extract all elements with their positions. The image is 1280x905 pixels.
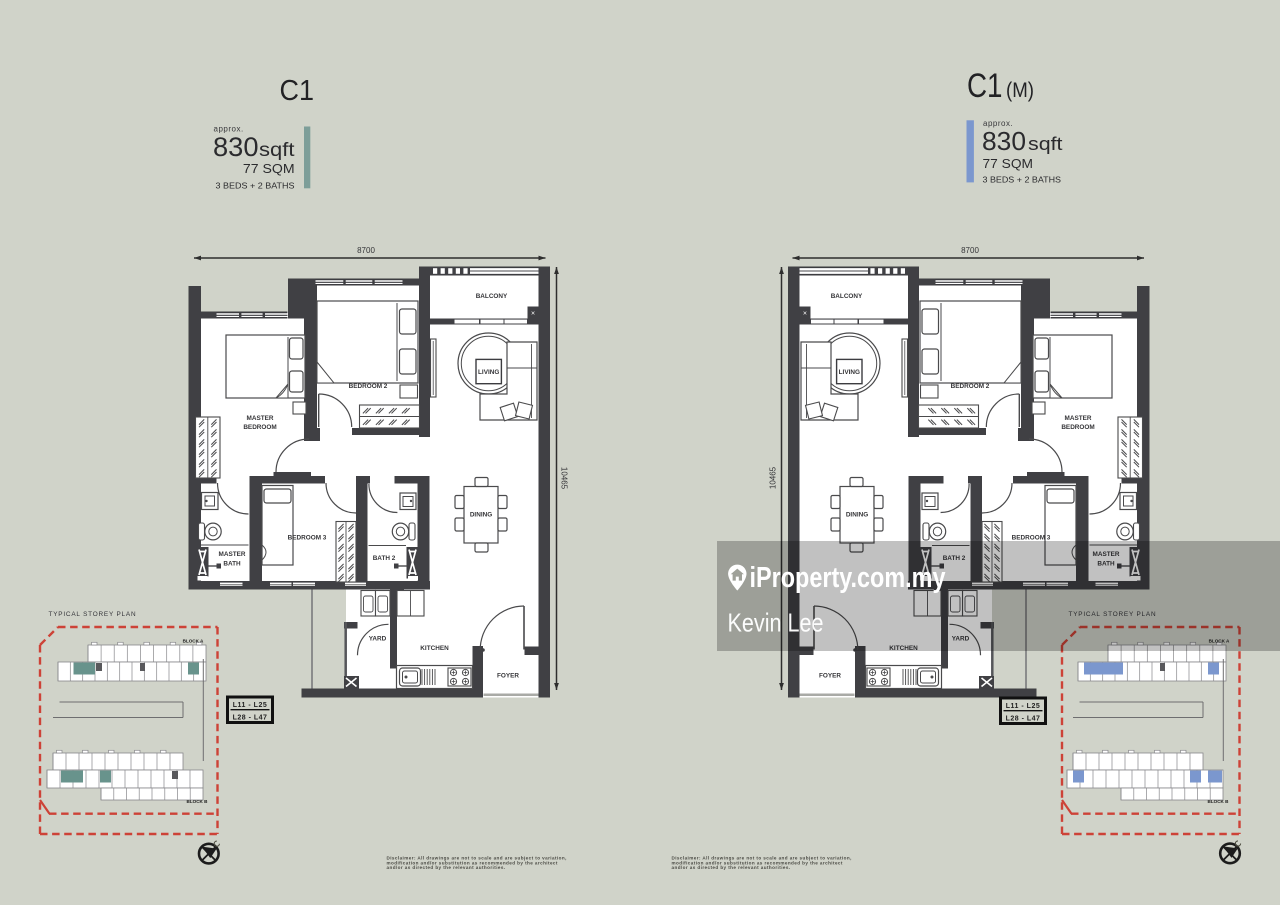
svg-text:BEDROOM: BEDROOM — [243, 424, 276, 431]
svg-text:DINING: DINING — [470, 512, 492, 519]
svg-text:BATH: BATH — [223, 561, 241, 568]
svg-text:DINING: DINING — [846, 512, 868, 519]
svg-text:LIVING: LIVING — [478, 369, 499, 376]
svg-text:L28 - L47: L28 - L47 — [233, 715, 268, 722]
svg-text:sqft: sqft — [259, 139, 295, 161]
svg-text:BEDROOM 2: BEDROOM 2 — [349, 383, 388, 390]
svg-text:C1: C1 — [967, 67, 1003, 105]
svg-text:sqft: sqft — [1028, 134, 1063, 154]
svg-text:approx.: approx. — [983, 119, 1013, 128]
svg-text:77 SQM: 77 SQM — [243, 162, 295, 176]
svg-text:830: 830 — [982, 128, 1026, 156]
svg-text:77 SQM: 77 SQM — [983, 157, 1034, 171]
svg-text:YARD: YARD — [369, 636, 387, 643]
svg-text:and/or as directed by the rele: and/or as directed by the relevant autho… — [672, 865, 791, 870]
svg-text:BEDROOM 3: BEDROOM 3 — [1012, 535, 1051, 542]
svg-text:×: × — [531, 311, 535, 318]
svg-text:TYPICAL STOREY PLAN: TYPICAL STOREY PLAN — [49, 611, 137, 618]
svg-text:BLOCK A: BLOCK A — [183, 639, 204, 644]
svg-text:8700: 8700 — [961, 246, 979, 255]
svg-text:L11 - L25: L11 - L25 — [1006, 703, 1040, 710]
svg-text:3 BEDS + 2 BATHS: 3 BEDS + 2 BATHS — [216, 181, 295, 191]
svg-text:BALCONY: BALCONY — [831, 293, 863, 300]
svg-text:10465: 10465 — [560, 467, 569, 490]
svg-text:10465: 10465 — [769, 466, 778, 489]
svg-text:Kevin Lee: Kevin Lee — [728, 608, 824, 638]
svg-text:C1: C1 — [280, 75, 315, 107]
svg-text:L11 - L25: L11 - L25 — [233, 702, 267, 709]
svg-text:BLOCK B: BLOCK B — [1208, 799, 1230, 804]
svg-text:iProperty.com.my: iProperty.com.my — [750, 562, 946, 594]
svg-text:BALCONY: BALCONY — [476, 293, 508, 300]
svg-text:MASTER: MASTER — [247, 415, 274, 422]
svg-text:MASTER: MASTER — [1065, 415, 1092, 422]
svg-text:BATH 2: BATH 2 — [373, 555, 396, 562]
svg-text:and/or as directed by the rele: and/or as directed by the relevant autho… — [387, 865, 506, 870]
svg-text:BEDROOM 3: BEDROOM 3 — [288, 535, 327, 542]
svg-text:LIVING: LIVING — [839, 369, 860, 376]
svg-text:(M): (M) — [1006, 79, 1034, 102]
svg-text:830: 830 — [213, 132, 259, 162]
svg-text:BEDROOM 2: BEDROOM 2 — [951, 383, 990, 390]
svg-text:BEDROOM: BEDROOM — [1061, 424, 1094, 431]
svg-text:FOYER: FOYER — [497, 673, 519, 680]
svg-text:3 BEDS + 2 BATHS: 3 BEDS + 2 BATHS — [983, 174, 1062, 184]
svg-text:×: × — [803, 311, 807, 318]
svg-text:L28 - L47: L28 - L47 — [1006, 716, 1041, 723]
svg-text:BLOCK B: BLOCK B — [187, 799, 209, 804]
svg-text:FOYER: FOYER — [819, 673, 841, 680]
svg-text:8700: 8700 — [357, 246, 375, 255]
svg-text:KITCHEN: KITCHEN — [420, 645, 449, 652]
svg-text:MASTER: MASTER — [219, 551, 246, 558]
